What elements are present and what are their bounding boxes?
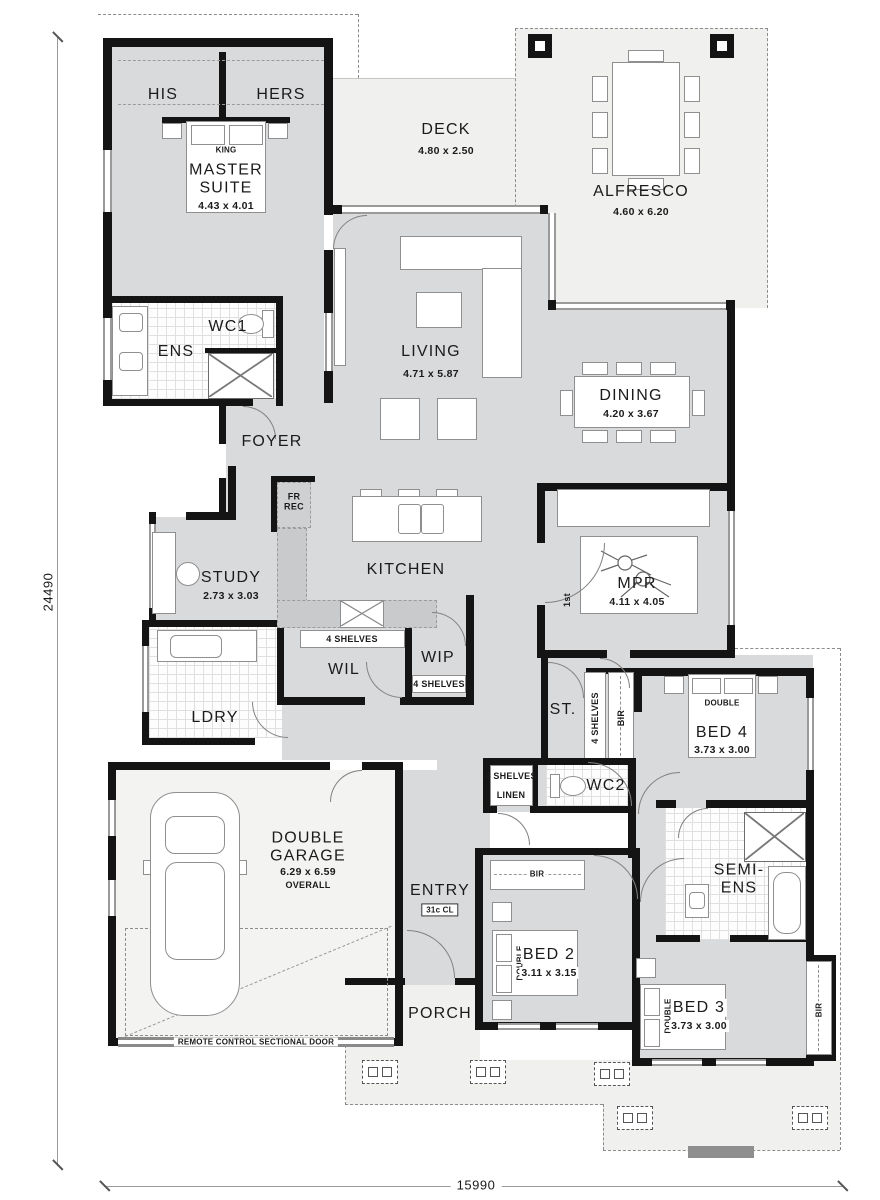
room-label-living: LIVING [401, 343, 461, 361]
pier-pad [637, 1113, 647, 1123]
outdoor-chair [592, 148, 608, 174]
window [498, 1023, 540, 1030]
wall [324, 371, 333, 403]
dining-chair [650, 430, 676, 443]
outdoor-chair [592, 76, 608, 102]
outdoor-chair [628, 50, 664, 62]
bedside-table [492, 1000, 512, 1020]
wall [400, 697, 474, 705]
dining-chair [560, 390, 573, 416]
window [342, 205, 540, 214]
outdoor-chair [592, 112, 608, 138]
kitchen-sink [398, 504, 421, 534]
room-label-wc1: WC1 [208, 318, 247, 336]
room-dims-garage: 6.29 x 6.59 [280, 866, 336, 878]
room-dims-living: 4.71 x 5.87 [403, 368, 459, 380]
eave-line [603, 1104, 604, 1150]
wall [548, 300, 556, 310]
window [142, 646, 149, 712]
room-dims-master: 4.43 x 4.01 [198, 200, 254, 212]
garage-overall-label: OVERALL [285, 880, 330, 890]
room-label-semi-ens: SEMI- ENS [714, 862, 764, 899]
wall [656, 935, 700, 942]
wall [103, 296, 283, 303]
wall [483, 806, 497, 813]
door-arc [498, 813, 530, 845]
wall [483, 758, 490, 813]
wall [634, 668, 642, 712]
window [103, 150, 112, 212]
study-desk [152, 532, 176, 614]
armchair [380, 398, 420, 440]
window [108, 800, 116, 836]
room-label-bed4: BED 4 [694, 724, 750, 742]
porch-pier [617, 1106, 653, 1130]
basin [689, 892, 705, 909]
dining-chair [582, 362, 608, 375]
wall [395, 762, 403, 1046]
wall [219, 406, 226, 444]
room-label-store: ST. [550, 701, 577, 719]
car-cabin [165, 862, 225, 960]
bir-label: BIR [814, 1001, 823, 1019]
bir-label: BIR [528, 869, 546, 878]
armchair [437, 398, 477, 440]
bedside-table [636, 958, 656, 978]
bedside-table [268, 123, 288, 139]
window [103, 318, 112, 380]
robe-rail [118, 60, 324, 61]
wall [806, 1055, 836, 1061]
wall [806, 808, 814, 958]
eave-line [345, 1104, 603, 1105]
floor-plan: HIS HERS KING MASTER SUITE 4.43 x 4.01 D… [0, 0, 880, 1200]
pillow [496, 965, 512, 993]
study-chair [176, 562, 200, 586]
wall [530, 806, 636, 813]
room-label-master: MASTER SUITE [189, 162, 263, 199]
window [556, 1023, 598, 1030]
outdoor-chair [684, 112, 700, 138]
room-label-wil: WIL [328, 661, 360, 679]
pier-pad [368, 1067, 378, 1077]
wall [475, 848, 640, 855]
linen-shelves-label: 4 SHELVES [485, 771, 537, 781]
porch-pier [470, 1060, 506, 1084]
room-label-bed2: BED 2 [521, 946, 577, 964]
room-dims-deck: 4.80 x 2.50 [418, 145, 474, 157]
room-label-hers: HERS [256, 86, 305, 104]
eave-line [345, 1045, 346, 1105]
wall [483, 758, 636, 765]
shower [208, 353, 274, 399]
wall [186, 512, 234, 520]
pier-pad [476, 1067, 486, 1077]
door-tag-1st: 1st [562, 593, 572, 607]
fridge-recess-label: FR REC [284, 492, 304, 513]
coffee-table [416, 292, 462, 328]
window [325, 313, 333, 371]
step [688, 1146, 754, 1158]
bedside-table [492, 902, 512, 922]
bedside-table [162, 123, 182, 139]
kitchen-bench [277, 528, 307, 602]
wall [324, 38, 333, 215]
room-dims-alfresco: 4.60 x 6.20 [613, 206, 669, 218]
car-hood [165, 816, 225, 854]
wall [455, 978, 483, 985]
wall [537, 483, 545, 543]
eave-line [98, 14, 358, 15]
wil-shelves-label: 4 SHELVES [326, 634, 378, 644]
wall [806, 668, 814, 698]
wall [103, 399, 253, 406]
room-label-mpr: MPR [617, 575, 656, 593]
wall [284, 697, 365, 705]
dimension-width: 15990 [451, 1179, 502, 1194]
tv-unit [334, 248, 346, 366]
porch-pier [362, 1060, 398, 1084]
pier-pad [490, 1067, 500, 1077]
wall [541, 650, 548, 765]
wall [324, 250, 333, 313]
window-slider [728, 511, 735, 625]
garage-door-label: REMOTE CONTROL SECTIONAL DOOR [174, 1037, 338, 1046]
pillow [724, 678, 753, 694]
oven-box [340, 600, 384, 628]
room-dims-mpr: 4.11 x 4.05 [609, 596, 664, 608]
dining-chair [692, 390, 705, 416]
toilet-cistern [550, 774, 560, 798]
wall [142, 620, 282, 627]
wall [540, 205, 548, 214]
pillow [644, 1019, 660, 1047]
pillow [692, 678, 721, 694]
alfresco-post [710, 34, 734, 58]
room-label-wip: WIP [421, 649, 455, 667]
sofa [400, 236, 522, 270]
alfresco-post [528, 34, 552, 58]
dimension-tick [53, 31, 64, 42]
wall-robe-divider [219, 52, 226, 120]
car-mirror [239, 860, 247, 875]
pier-pad [812, 1113, 822, 1123]
bed-size-label: KING [213, 145, 240, 154]
room-label-garage: DOUBLE GARAGE [270, 830, 346, 867]
wall [706, 800, 814, 808]
dimension-depth: 24490 [42, 569, 57, 616]
shower [744, 812, 806, 862]
wall [277, 627, 284, 705]
wip-shelves-label: 4 SHELVES [413, 679, 465, 689]
bir-label: BIR [616, 710, 626, 726]
room-dims-dining: 4.20 x 3.67 [603, 408, 659, 420]
car-mirror [143, 860, 151, 875]
pillow [496, 934, 512, 962]
wall [475, 848, 483, 1030]
pillow [191, 125, 225, 145]
basin [119, 313, 143, 332]
pier-pad [600, 1069, 610, 1079]
window [807, 698, 814, 770]
window [108, 880, 116, 916]
wall [103, 38, 333, 47]
dimension-line-vertical [57, 38, 58, 1166]
island-pendant [436, 489, 458, 497]
room-label-alfresco: ALFRESCO [593, 183, 689, 201]
room-label-foyer: FOYER [241, 433, 302, 451]
wall [228, 466, 236, 520]
room-label-linen: LINEN [497, 790, 526, 800]
room-dims-bed4: 3.73 x 3.00 [692, 744, 752, 756]
pier-pad [382, 1067, 392, 1077]
sofa-corner [482, 268, 522, 378]
room-dims-study: 2.73 x 3.03 [203, 590, 259, 602]
room-dims-bed2: 3.11 x 3.15 [519, 967, 578, 979]
dimension-tick [53, 1159, 64, 1170]
bath-inner [773, 872, 801, 934]
dining-chair [616, 362, 642, 375]
island-pendant [398, 489, 420, 497]
pillow [644, 988, 660, 1016]
room-label-dining: DINING [599, 387, 662, 405]
mpr-sofa [557, 489, 710, 527]
store-shelves-label: 4 SHELVES [590, 692, 600, 744]
room-label-his: HIS [148, 86, 178, 104]
porch-slab [480, 1060, 840, 1105]
wall [466, 595, 474, 705]
outdoor-chair [684, 76, 700, 102]
room-label-kitchen: KITCHEN [367, 561, 446, 579]
room-label-deck: DECK [421, 121, 470, 139]
wall [108, 762, 330, 770]
bed-size-label: DOUBLE [702, 698, 743, 707]
wall [333, 205, 342, 214]
outdoor-chair [684, 148, 700, 174]
room-label-study: STUDY [201, 569, 261, 587]
dining-chair [582, 430, 608, 443]
wall [727, 308, 735, 483]
island-pendant [360, 489, 382, 497]
room-label-ldry: LDRY [191, 709, 238, 727]
window [652, 1059, 702, 1066]
pier-pad [798, 1113, 808, 1123]
room-label-wc2: WC2 [586, 777, 625, 795]
pier-pad [623, 1113, 633, 1123]
room-label-bed3: BED 3 [671, 999, 727, 1017]
room-dims-bed3: 3.73 x 3.00 [669, 1020, 729, 1032]
eave-line [840, 648, 841, 1150]
room-label-porch: PORCH [408, 1005, 472, 1023]
ldry-trough [170, 635, 222, 658]
dining-chair [650, 362, 676, 375]
window [548, 213, 556, 305]
wall [630, 650, 735, 658]
window [716, 1059, 766, 1066]
eave-line [358, 14, 359, 78]
bedside-table [758, 676, 778, 694]
basin [119, 352, 143, 371]
porch-pier [792, 1106, 828, 1130]
pier-pad [614, 1069, 624, 1079]
pillow [229, 125, 263, 145]
kitchen-sink [421, 504, 444, 534]
room-label-entry: ENTRY [410, 882, 470, 900]
room-label-ens: ENS [158, 343, 195, 361]
entry-ceiling-label: 31c CL [421, 903, 458, 916]
wall [142, 738, 255, 745]
eave-line [735, 648, 840, 649]
bedside-table [664, 676, 684, 694]
toilet-bowl [560, 776, 586, 796]
wall [405, 628, 412, 697]
dining-chair [616, 430, 642, 443]
outdoor-table [612, 62, 680, 176]
wall [727, 483, 735, 511]
window [556, 302, 726, 310]
porch-pier [594, 1062, 630, 1086]
